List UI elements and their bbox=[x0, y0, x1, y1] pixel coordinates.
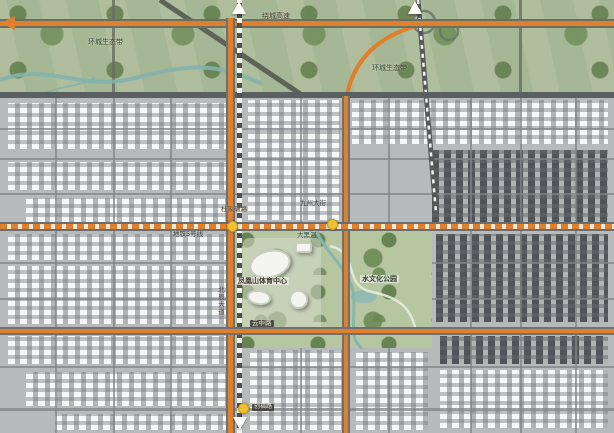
belt-edge-road bbox=[0, 92, 614, 98]
label-beichen-avenue: 北辰大道 bbox=[216, 286, 223, 316]
road-arrow-up-icon bbox=[232, 1, 246, 14]
junction-marker bbox=[238, 403, 249, 414]
label-jiuzhou-street: 九州大街 bbox=[300, 200, 326, 207]
label-sports-center: 凤凰山体育中心 bbox=[236, 277, 289, 285]
road-arrow-down-icon bbox=[233, 417, 247, 430]
belt-river bbox=[0, 67, 262, 84]
ring-expressway-road bbox=[0, 21, 614, 26]
junction-marker bbox=[227, 221, 238, 232]
label-ring-expressway: 绕城高速 bbox=[262, 12, 290, 20]
label-metro-line5: 地铁5号线 bbox=[173, 231, 203, 238]
yunzhong-road bbox=[0, 329, 614, 333]
metro-line5-road bbox=[0, 224, 614, 229]
planning-map: 绕城高速 环城生态带 环城生态带 杜家碾路 地铁5号线 九州大街 大黑河 凤凰山… bbox=[0, 0, 614, 433]
label-chuangfu-road: 创福路 bbox=[252, 404, 274, 411]
jiuzhou-street-road bbox=[344, 96, 348, 433]
junction-marker bbox=[327, 219, 338, 230]
label-yunzhong-road: 云中路 bbox=[250, 320, 274, 327]
label-dujianian-road: 杜家碾路 bbox=[221, 206, 247, 213]
label-dahei-river: 大黑河 bbox=[297, 232, 317, 239]
label-culture-park: 水文化公园 bbox=[360, 275, 399, 283]
north-south-dashed-road bbox=[237, 0, 242, 433]
label-eco-belt-left: 环城生态带 bbox=[88, 38, 123, 46]
vector-overlay bbox=[0, 0, 614, 433]
road-arrow-left-icon bbox=[1, 16, 15, 30]
label-eco-belt-right: 环城生态带 bbox=[372, 64, 407, 72]
orange-connector-road bbox=[346, 23, 428, 100]
road-arrow-up-icon bbox=[408, 1, 422, 14]
